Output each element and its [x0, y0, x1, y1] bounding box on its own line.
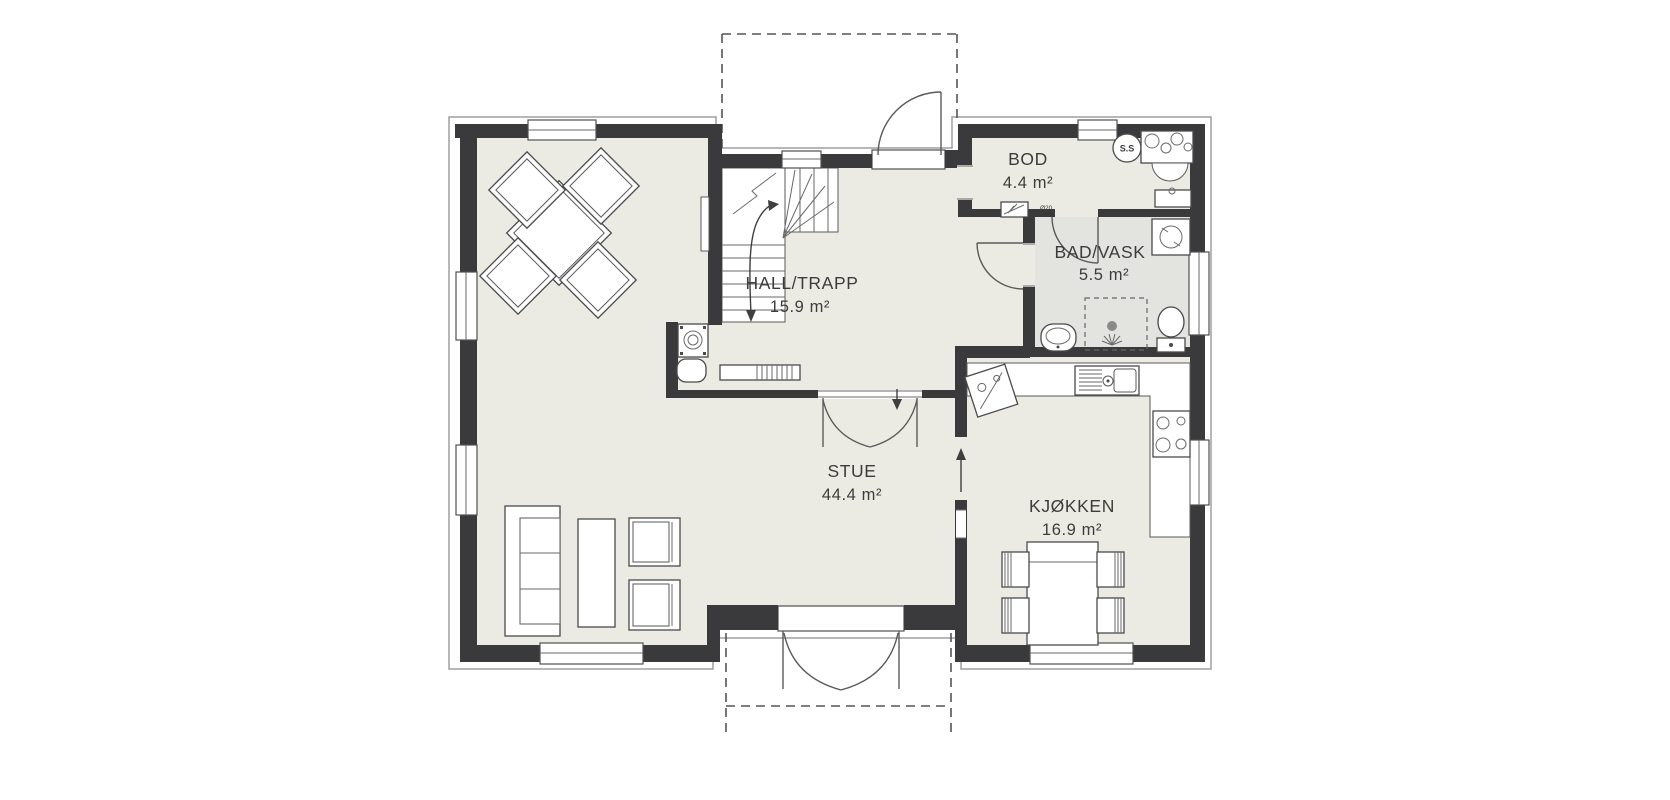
- window: [782, 151, 821, 168]
- svg-text:KJØKKEN: KJØKKEN: [1029, 496, 1115, 516]
- hot-water-badge: S.S: [1113, 134, 1141, 162]
- washing-machine-icon: [1152, 219, 1190, 255]
- coffee-table: [578, 519, 615, 627]
- fireplace-icon: [677, 324, 708, 382]
- top-porch-outline: [722, 34, 957, 152]
- bod-cabinet: [1155, 188, 1191, 207]
- kitchen-table: [1027, 542, 1098, 645]
- svg-text:44.4 m²: 44.4 m²: [822, 486, 882, 504]
- floor-plan-canvas: S.S Ø20: [0, 0, 1670, 800]
- toilet-icon: [1157, 307, 1185, 352]
- kitchen-sink-icon: [1075, 366, 1139, 395]
- bottom-porch-outline: [726, 633, 951, 735]
- svg-text:STUE: STUE: [827, 461, 876, 481]
- hall-bench: [720, 365, 800, 380]
- svg-text:16.9 m²: 16.9 m²: [1042, 521, 1102, 539]
- window: [456, 445, 477, 515]
- window: [540, 643, 643, 664]
- svg-text:S.S: S.S: [1120, 144, 1135, 154]
- svg-text:5.5 m²: 5.5 m²: [1079, 266, 1129, 284]
- svg-text:4.4 m²: 4.4 m²: [1003, 174, 1053, 192]
- entry-door: [878, 92, 941, 155]
- svg-text:HALL/TRAPP: HALL/TRAPP: [746, 273, 859, 293]
- stove-icon: [1153, 411, 1190, 457]
- window: [528, 120, 596, 140]
- window: [1030, 643, 1133, 664]
- floor-plan-page: S.S Ø20: [0, 0, 1670, 800]
- svg-text:Ø20: Ø20: [1040, 205, 1053, 212]
- wall-niche: [701, 197, 709, 251]
- svg-text:BOD: BOD: [1008, 149, 1048, 169]
- armchair: [629, 580, 680, 630]
- window: [456, 272, 477, 340]
- sofa: [505, 506, 560, 636]
- terrace-double-door: [783, 631, 899, 690]
- svg-text:15.9 m²: 15.9 m²: [770, 298, 830, 316]
- svg-text:BAD/VASK: BAD/VASK: [1054, 242, 1145, 262]
- window: [1189, 440, 1209, 505]
- window: [1189, 252, 1209, 335]
- window: [1078, 120, 1117, 140]
- armchair: [629, 518, 680, 566]
- washbasin-icon: [1041, 324, 1076, 351]
